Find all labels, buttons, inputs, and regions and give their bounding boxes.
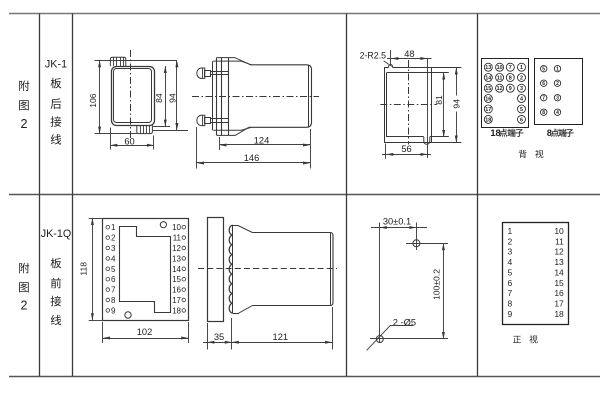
svg-text:9: 9 [111,306,116,315]
svg-text:118: 118 [78,262,88,276]
svg-text:5: 5 [542,67,545,73]
svg-text:10: 10 [497,65,503,71]
svg-text:9: 9 [509,86,512,92]
svg-text:17: 17 [485,107,491,113]
svg-text:JK-1Q: JK-1Q [41,228,72,240]
svg-text:11: 11 [173,234,182,243]
svg-text:3: 3 [556,96,559,102]
svg-text:12: 12 [497,86,503,92]
svg-text:4: 4 [556,110,559,116]
svg-text:14: 14 [554,267,564,277]
svg-text:14: 14 [485,75,491,81]
svg-text:16: 16 [554,288,564,298]
svg-text:17: 17 [172,296,181,305]
svg-text:2-R2.5: 2-R2.5 [360,50,387,60]
svg-text:6: 6 [111,275,116,284]
svg-text:56: 56 [401,144,411,154]
svg-text:2: 2 [508,236,513,246]
svg-text:13: 13 [554,257,564,267]
svg-text:30±0.1: 30±0.1 [383,217,411,227]
svg-text:3: 3 [111,244,116,253]
svg-text:10: 10 [172,223,181,232]
svg-text:1: 1 [111,223,116,232]
svg-text:18: 18 [485,117,491,123]
svg-text:13: 13 [172,254,181,263]
svg-text:6: 6 [520,117,523,123]
svg-text:6: 6 [542,81,545,87]
svg-text:15: 15 [554,278,564,288]
svg-text:16: 16 [485,96,491,102]
svg-text:3: 3 [520,86,523,92]
svg-text:8: 8 [111,296,116,305]
svg-text:18: 18 [490,128,500,138]
svg-text:3: 3 [508,247,513,257]
svg-text:11: 11 [555,236,564,246]
svg-text:94: 94 [451,99,461,109]
svg-text:81: 81 [434,95,444,105]
svg-text:5: 5 [520,107,523,113]
svg-text:1: 1 [556,67,559,73]
svg-text:17: 17 [554,298,564,308]
svg-text:60: 60 [124,137,134,147]
svg-text:2: 2 [556,81,559,87]
svg-text:18: 18 [554,309,564,319]
svg-text:48: 48 [404,49,414,59]
svg-text:16: 16 [172,286,181,295]
svg-text:94: 94 [168,93,178,103]
svg-text:100±0.2: 100±0.2 [432,269,442,300]
svg-text:2 -Ø5: 2 -Ø5 [393,318,416,328]
svg-text:84: 84 [154,93,164,103]
svg-text:14: 14 [172,265,181,274]
svg-text:6: 6 [508,278,513,288]
svg-text:8: 8 [509,75,512,81]
svg-text:121: 121 [273,332,289,342]
svg-text:146: 146 [244,153,260,163]
svg-text:2: 2 [21,298,28,312]
svg-text:JK-1: JK-1 [45,59,67,71]
svg-text:8: 8 [508,298,513,308]
svg-text:4: 4 [111,254,116,263]
svg-text:4: 4 [508,257,513,267]
svg-text:18: 18 [172,306,181,315]
svg-text:12: 12 [172,244,181,253]
svg-text:4: 4 [520,96,523,102]
svg-text:10: 10 [554,226,564,236]
svg-text:15: 15 [172,275,181,284]
svg-text:2: 2 [520,75,523,81]
svg-text:106: 106 [88,93,98,108]
svg-text:8: 8 [542,110,545,116]
svg-text:102: 102 [137,327,153,337]
svg-text:1: 1 [520,65,523,71]
svg-text:15: 15 [485,86,491,92]
svg-text:124: 124 [254,135,270,145]
svg-text:5: 5 [111,265,116,274]
svg-text:13: 13 [485,65,491,71]
svg-text:11: 11 [497,75,503,81]
svg-text:2: 2 [111,234,116,243]
svg-text:9: 9 [508,309,513,319]
svg-text:7: 7 [508,288,513,298]
svg-text:2: 2 [21,117,28,131]
svg-text:35: 35 [214,332,224,342]
svg-text:1: 1 [508,226,513,236]
svg-text:12: 12 [554,247,564,257]
svg-text:7: 7 [111,286,116,295]
svg-text:7: 7 [542,96,545,102]
svg-text:5: 5 [508,267,513,277]
svg-text:7: 7 [509,65,512,71]
